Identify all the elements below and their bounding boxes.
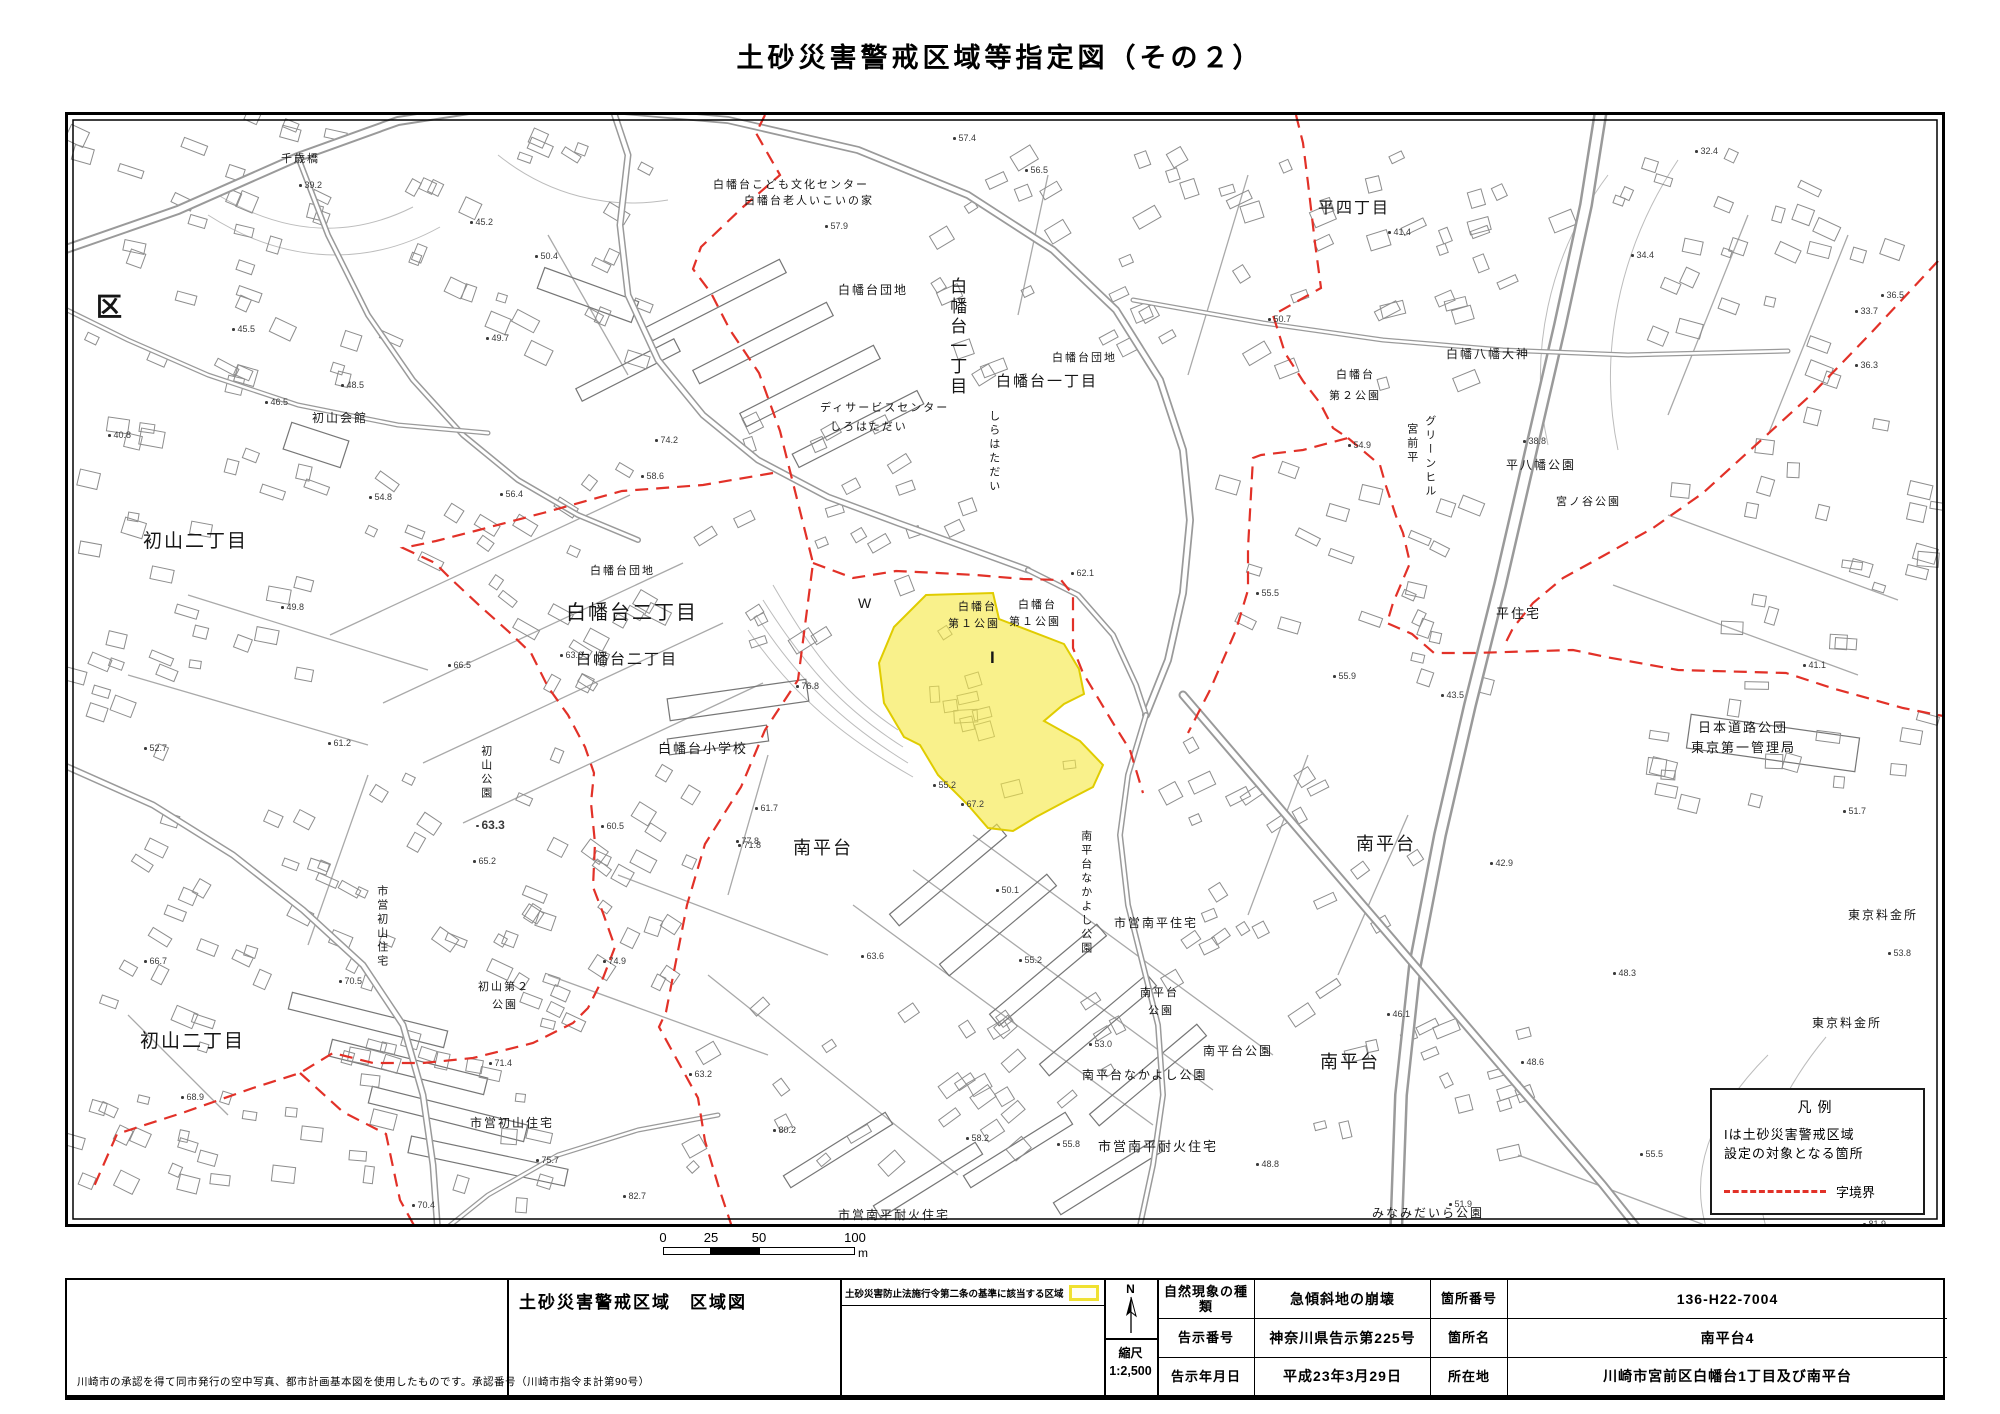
map-label: 区 (96, 291, 124, 324)
map-label: 初山二丁目 (140, 1030, 245, 1054)
map-label: 白幡台団地 (1052, 352, 1117, 366)
north-indicator: N 縮尺 1:2,500 (1104, 1280, 1157, 1395)
divider (507, 1280, 509, 1395)
spot-elevation: 57.9 (825, 221, 848, 231)
spot-elevation: 45.5 (232, 324, 255, 334)
map-label: 初山公園 (478, 745, 492, 801)
spot-elevation: 40.8 (108, 430, 131, 440)
spot-elevation: 65.2 (473, 856, 496, 866)
zone-color-swatch (1069, 1285, 1099, 1301)
spot-elevation: 55.8 (1057, 1139, 1080, 1149)
map-label: 白幡台 (958, 601, 997, 615)
spot-elevation: 61.2 (328, 738, 351, 748)
spot-elevation: 63.2 (689, 1069, 712, 1079)
info-key: 箇所番号 (1430, 1280, 1507, 1318)
spot-elevation: 80.2 (773, 1125, 796, 1135)
spot-elevation: 34.4 (1631, 250, 1654, 260)
spot-elevation: 81.9 (1863, 1219, 1886, 1224)
info-value: 急傾斜地の崩壊 (1254, 1280, 1430, 1318)
spot-elevation: 58.2 (966, 1133, 989, 1143)
map-label: 市営南平耐火住宅 (838, 1208, 950, 1223)
spot-elevation: 56.5 (1025, 165, 1048, 175)
spot-elevation: 55.5 (1256, 588, 1279, 598)
spot-elevation: 51.9 (1449, 1199, 1472, 1209)
spot-elevation: 46.5 (265, 397, 288, 407)
spot-elevation: 56.4 (500, 489, 523, 499)
map-label: 白幡台団地 (838, 283, 908, 298)
map-label: 南平台 (1140, 987, 1179, 1001)
spot-elevation: 48.3 (1613, 968, 1636, 978)
spot-elevation: 39.2 (299, 180, 322, 190)
map-label: 市営南平住宅 (1114, 916, 1198, 931)
map-label: グリーンヒル (1422, 415, 1436, 499)
map-label: ディサービスセンター (820, 402, 949, 416)
scale-bar-tick: 0 (659, 1230, 666, 1245)
map-label: 南平台 (793, 837, 853, 860)
scale-bar-tick: 100 (844, 1230, 866, 1245)
map-label: しらはただい (986, 410, 1000, 494)
info-key: 自然現象の種類 (1157, 1280, 1254, 1318)
spot-elevation: 55.2 (933, 780, 956, 790)
map-label: 白幡台 (1336, 369, 1375, 383)
scale-bar-segment (663, 1247, 711, 1255)
map-canvas: 区初山二丁目初山二丁目白幡台二丁目白幡台二丁目南平台南平台南平台平四丁目白幡台一… (68, 115, 1942, 1224)
spot-elevation: 53.0 (1089, 1039, 1112, 1049)
spot-elevation: 41.4 (1388, 227, 1411, 237)
map-label: 東京料金所 (1812, 1016, 1882, 1031)
spot-elevation: 52.7 (144, 743, 167, 753)
map-label: 南平台 (1320, 1051, 1380, 1074)
map-label: 初山会館 (312, 411, 368, 426)
scale-label: 縮尺 (1104, 1344, 1157, 1361)
spot-elevation: 63.6 (861, 951, 884, 961)
spot-elevation: 33.7 (1855, 306, 1878, 316)
map-label: 東京料金所 (1848, 908, 1918, 923)
map-label: 白幡八幡大神 (1446, 347, 1530, 362)
map-label: 公園 (1148, 1005, 1174, 1019)
info-key: 告示年月日 (1157, 1357, 1254, 1395)
spot-elevation: 63.3 (476, 818, 505, 832)
sheet-info-table: 自然現象の種類 急傾斜地の崩壊 箇所番号 136-H22-7004 告示番号 神… (1157, 1280, 1947, 1395)
zone-note: 土砂災害防止法施行令第二条の基準に該当する区域 (845, 1286, 1064, 1300)
scale-bar: m 02550100 (648, 1230, 893, 1266)
spot-elevation: 55.9 (1333, 671, 1356, 681)
scale-value: 1:2,500 (1104, 1364, 1157, 1378)
info-value: 136-H22-7004 (1507, 1280, 1947, 1318)
map-label: 宮前平 (1404, 423, 1418, 465)
spot-elevation: 66.7 (144, 956, 167, 966)
spot-elevation: 55.2 (1019, 955, 1042, 965)
map-label: しろはただい (830, 421, 908, 435)
spot-elevation: 41.1 (1803, 660, 1826, 670)
spot-elevation: 51.7 (1843, 806, 1866, 816)
spot-elevation: 82.7 (623, 1191, 646, 1201)
spot-elevation: 58.6 (641, 471, 664, 481)
map-labels-layer: 区初山二丁目初山二丁目白幡台二丁目白幡台二丁目南平台南平台南平台平四丁目白幡台一… (68, 115, 1942, 1224)
info-key: 告示番号 (1157, 1318, 1254, 1356)
spot-elevation: 48.6 (1521, 1057, 1544, 1067)
spot-elevation: 48.8 (1256, 1159, 1279, 1169)
spot-elevation: 53.8 (1888, 948, 1911, 958)
map-label: 白幡台こども文化センター (713, 179, 869, 193)
spot-elevation: 76.8 (796, 681, 819, 691)
spot-elevation: 50.7 (1268, 314, 1291, 324)
spot-elevation: 74.2 (655, 435, 678, 445)
info-key: 箇所名 (1430, 1318, 1507, 1356)
map-label: 初山二丁目 (143, 530, 248, 554)
map-label: 市営初山住宅 (470, 1116, 554, 1131)
spot-elevation: 74.9 (603, 956, 626, 966)
map-label: 白幡台一丁目 (996, 373, 1098, 392)
map-label: 白幡台二丁目 (576, 651, 678, 670)
spot-elevation: 55.5 (1640, 1149, 1663, 1159)
map-label: 白幡台二丁目 (566, 601, 698, 626)
spot-elevation: 57.4 (953, 133, 976, 143)
info-value: 平成23年3月29日 (1254, 1357, 1430, 1395)
source-note: 川崎市の承認を得て同市発行の空中写真、都市計画基本図を使用したものです。承認番号… (77, 1374, 650, 1389)
legend-line-2: 設定の対象となる箇所 (1724, 1145, 1911, 1164)
spot-elevation: 32.4 (1695, 146, 1718, 156)
info-value: 神奈川県告示第225号 (1254, 1318, 1430, 1356)
map-label: I (990, 647, 997, 668)
map-legend: 凡例 Iは土砂災害警戒区域 設定の対象となる箇所 字境界 (1710, 1088, 1925, 1215)
spot-elevation: 67.2 (961, 799, 984, 809)
map-label: 白幡台小学校 (658, 741, 748, 757)
document-title: 土砂災害警戒区域等指定図（その２） (0, 36, 2000, 75)
legend-line-1: Iは土砂災害警戒区域 (1724, 1126, 1911, 1145)
map-label: W (858, 595, 873, 613)
spot-elevation: 49.7 (486, 333, 509, 343)
north-arrow-icon (1122, 1296, 1140, 1334)
map-label: 白幡台一丁目 (946, 277, 967, 397)
map-label: 市営初山住宅 (374, 885, 388, 969)
spot-elevation: 61.7 (755, 803, 778, 813)
spot-elevation: 50.4 (535, 251, 558, 261)
spot-elevation: 46.1 (1387, 1009, 1410, 1019)
map-label: 千歳橋 (281, 153, 320, 167)
info-key: 所在地 (1430, 1357, 1507, 1395)
title-block: 川崎市の承認を得て同市発行の空中写真、都市計画基本図を使用したものです。承認番号… (65, 1278, 1945, 1400)
spot-elevation: 71.8 (738, 840, 761, 850)
map-label: 平四丁目 (1318, 199, 1390, 219)
spot-elevation: 70.5 (339, 976, 362, 986)
map-label: 第１公園 (1009, 616, 1061, 630)
spot-elevation: 54.8 (369, 492, 392, 502)
map-sheet: 土砂災害警戒区域等指定図（その２） (0, 0, 2000, 1414)
scale-bar-segment (711, 1247, 759, 1255)
map-label: 日本道路公団 (1698, 720, 1788, 736)
spot-elevation: 66.5 (448, 660, 471, 670)
map-label: 南平台なかよし公園 (1082, 1068, 1207, 1083)
map-label: 東京第一管理局 (1691, 740, 1796, 756)
map-label: 南平台公園 (1203, 1044, 1273, 1059)
map-label: 公園 (492, 999, 518, 1013)
spot-elevation: 68.9 (181, 1092, 204, 1102)
spot-elevation: 49.8 (281, 602, 304, 612)
map-frame: 区初山二丁目初山二丁目白幡台二丁目白幡台二丁目南平台南平台南平台平四丁目白幡台一… (65, 112, 1945, 1227)
spot-elevation: 60.5 (601, 821, 624, 831)
legend-boundary-label: 字境界 (1836, 1182, 1875, 1201)
spot-elevation: 36.5 (1881, 290, 1904, 300)
spot-elevation: 63.6 (560, 650, 583, 660)
map-label: 白幡台老人いこいの家 (744, 195, 874, 209)
map-label: 第１公園 (948, 618, 1000, 632)
spot-elevation: 43.5 (1441, 690, 1464, 700)
spot-elevation: 36.3 (1855, 360, 1878, 370)
scale-bar-tick: 25 (704, 1230, 718, 1245)
map-label: 平八幡公園 (1506, 458, 1576, 473)
divider (1104, 1338, 1157, 1340)
scale-bar-segment (759, 1247, 855, 1255)
map-label: 南平台なかよし公園 (1078, 830, 1092, 956)
scale-bar-unit: m (858, 1246, 868, 1260)
map-label: 南平台 (1356, 833, 1416, 856)
legend-boundary-row: 字境界 (1724, 1182, 1911, 1201)
info-value: 川崎市宮前区白幡台1丁目及び南平台 (1507, 1357, 1947, 1395)
map-label: 市営南平耐火住宅 (1098, 1139, 1218, 1155)
zone-legend-row: 土砂災害防止法施行令第二条の基準に該当する区域 (840, 1280, 1104, 1306)
map-label: 宮ノ谷公園 (1556, 496, 1621, 510)
map-label: 白幡台 (1018, 599, 1057, 613)
map-label: 平住宅 (1496, 606, 1541, 622)
spot-elevation: 54.9 (1348, 440, 1371, 450)
map-label: 白幡台団地 (590, 565, 655, 579)
scale-bar-tick: 50 (752, 1230, 766, 1245)
north-label: N (1104, 1282, 1157, 1296)
spot-elevation: 45.2 (470, 217, 493, 227)
spot-elevation: 50.1 (996, 885, 1019, 895)
spot-elevation: 62.1 (1071, 568, 1094, 578)
legend-title: 凡例 (1724, 1097, 1911, 1117)
boundary-dash-sample (1724, 1190, 1826, 1193)
info-value: 南平台4 (1507, 1318, 1947, 1356)
map-label: 第２公園 (1329, 390, 1381, 404)
map-label: 初山第２ (478, 981, 530, 995)
sheet-title: 土砂災害警戒区域 区域図 (519, 1288, 747, 1313)
spot-elevation: 70.4 (412, 1200, 435, 1210)
spot-elevation: 42.9 (1490, 858, 1513, 868)
spot-elevation: 71.4 (489, 1058, 512, 1068)
spot-elevation: 48.5 (341, 380, 364, 390)
spot-elevation: 38.8 (1523, 436, 1546, 446)
spot-elevation: 75.7 (536, 1155, 559, 1165)
